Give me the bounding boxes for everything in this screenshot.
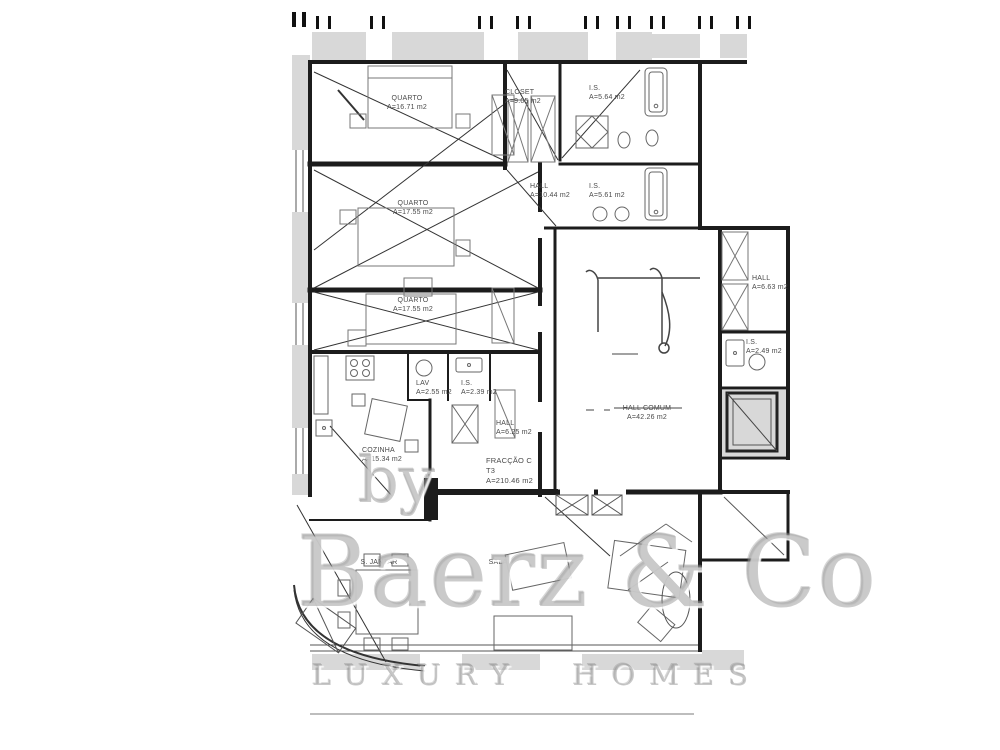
stairs (586, 268, 700, 410)
room-label-quarto-1: QUARTOA=16.71 m2 (372, 94, 442, 113)
room-label-hall-3: HALLA=6.25 m2 (496, 419, 532, 438)
watermark-brand: Baerz & Co (297, 516, 877, 630)
column-ticks (292, 12, 751, 29)
room-label-is-3: I.S.A=2.49 m2 (746, 338, 782, 357)
room-label-is-1: I.S.A=5.64 m2 (589, 84, 625, 103)
room-label-is-4: I.S.A=2.39 m2 (461, 379, 497, 398)
room-label-hall-comum: HALL COMUMA=42.26 m2 (605, 404, 689, 423)
room-label-hall-1: HALLA=10.44 m2 (530, 182, 570, 201)
room-label-is-2: I.S.A=5.61 m2 (589, 182, 625, 201)
room-label-quarto-3: QUARTOA=17.55 m2 (378, 296, 448, 315)
unit-label: FRACÇÃO C T3 A=210.46 m2 (486, 456, 533, 486)
room-label-quarto-2: QUARTOA=17.55 m2 (378, 199, 448, 218)
watermark-by: by (358, 444, 435, 518)
floor-plan-page: QUARTOA=16.71 m2 QUARTOA=17.55 m2 QUARTO… (0, 0, 1000, 750)
room-label-closet: CLOSETA=9.05 m2 (505, 88, 541, 107)
furniture (340, 66, 748, 438)
watermark-tagline: LUXURY HOMES (312, 658, 762, 692)
kitchen-fittings (314, 356, 418, 452)
floor-plan-drawing (0, 0, 1000, 750)
room-label-lav: LAVA=2.55 m2 (416, 379, 452, 398)
entrance-door-panels (556, 495, 622, 515)
room-label-hall-2: HALLA=6.63 m2 (752, 274, 788, 293)
